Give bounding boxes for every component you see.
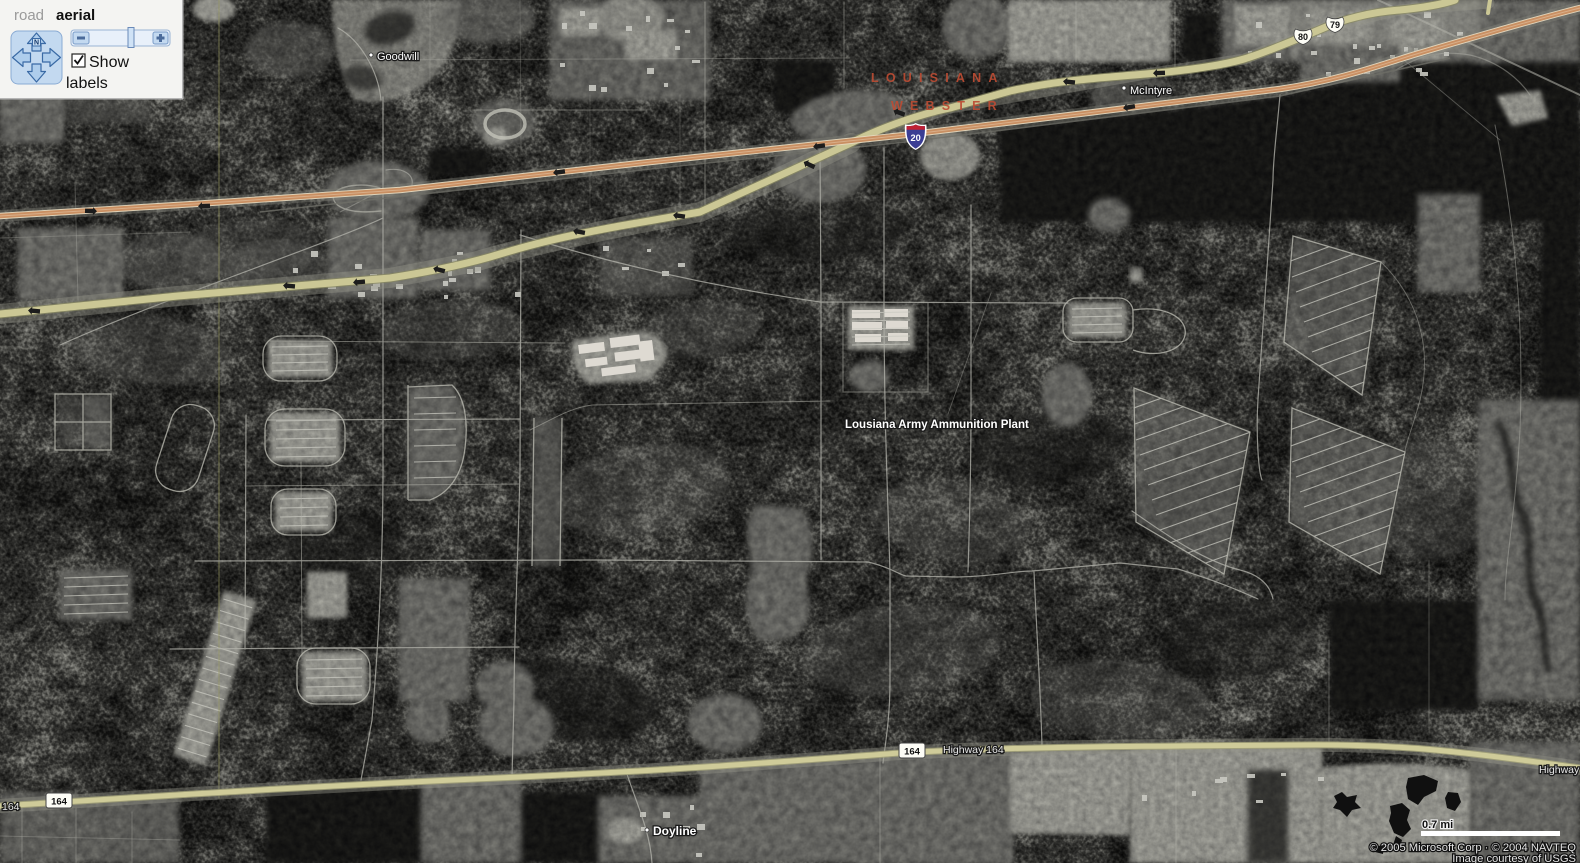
- svg-text:McIntyre: McIntyre: [1130, 85, 1172, 97]
- svg-text:LOUISIANA: LOUISIANA: [871, 71, 1005, 85]
- svg-text:Show: Show: [89, 54, 129, 71]
- svg-text:Doyline: Doyline: [653, 824, 697, 838]
- svg-text:road: road: [14, 7, 44, 24]
- svg-text:164: 164: [2, 801, 20, 813]
- svg-text:labels: labels: [66, 75, 108, 92]
- svg-text:164: 164: [904, 747, 921, 758]
- svg-text:WEBSTER: WEBSTER: [891, 99, 1004, 113]
- svg-text:0.7 mi: 0.7 mi: [1422, 819, 1453, 831]
- svg-text:79: 79: [1330, 20, 1340, 30]
- svg-text:Highway 164: Highway 164: [943, 744, 1004, 756]
- svg-text:20: 20: [911, 133, 921, 143]
- svg-text:80: 80: [1298, 32, 1308, 42]
- svg-text:Image courtesy of USGS: Image courtesy of USGS: [1452, 853, 1576, 863]
- svg-text:aerial: aerial: [56, 7, 95, 24]
- svg-text:N: N: [34, 40, 39, 47]
- svg-text:164: 164: [51, 797, 68, 808]
- svg-text:Highway: Highway: [1539, 764, 1580, 776]
- svg-text:Lousiana Army Ammunition Plant: Lousiana Army Ammunition Plant: [845, 419, 1029, 431]
- svg-text:Goodwill: Goodwill: [377, 51, 419, 63]
